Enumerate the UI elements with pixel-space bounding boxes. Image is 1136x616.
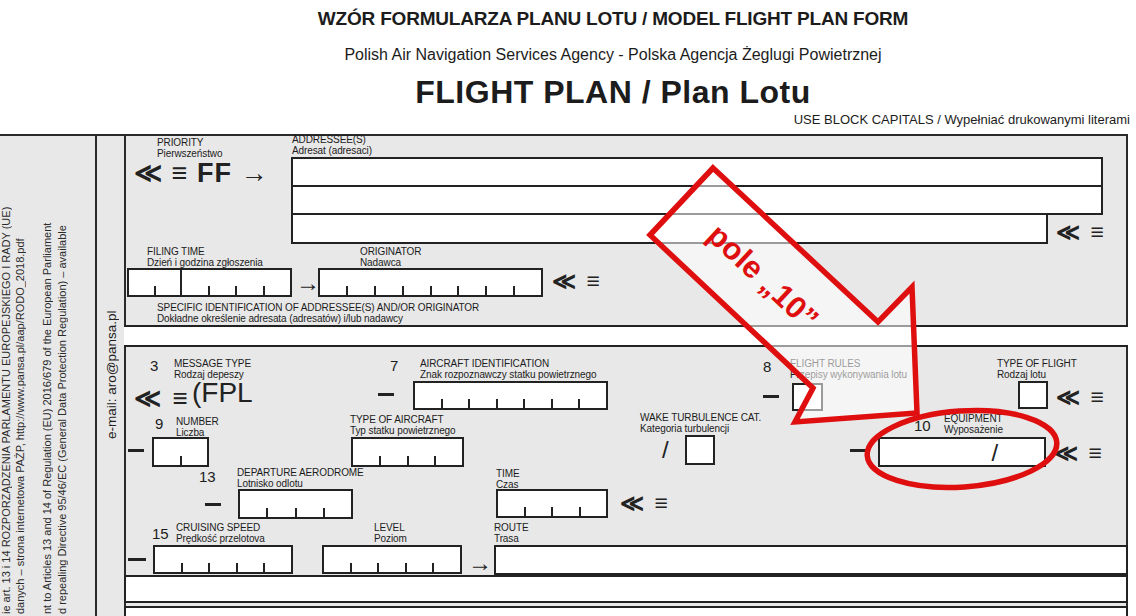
field-15-number: 15 bbox=[152, 525, 169, 542]
field-3-number: 3 bbox=[150, 357, 158, 374]
rodo-line-1: ie art. 13 i 14 ROZPORZĄDZENIA PARLAMENT… bbox=[0, 138, 14, 614]
time-telex-mark: ≪ ≡ bbox=[620, 492, 670, 515]
flight-plan-form-page: WZÓR FORMULARZA PLANU LOTU / MODEL FLIGH… bbox=[0, 0, 1136, 616]
number-box[interactable] bbox=[152, 437, 209, 467]
equipment-box[interactable]: / bbox=[878, 437, 1046, 467]
aircraft-identification-box[interactable] bbox=[413, 381, 608, 410]
specific-identification-label: SPECIFIC IDENTIFICATION OF ADDRESSEE(S) … bbox=[157, 302, 479, 324]
type-of-flight-box[interactable] bbox=[1018, 381, 1048, 409]
level-arrow-mark: → bbox=[468, 551, 492, 575]
equipment-telex-mark: ≪ ≡ bbox=[1054, 442, 1104, 465]
addressee-label: ADDRESSEE(S) Adresat (adresaci) bbox=[292, 134, 372, 156]
number-label: NUMBER Liczba bbox=[176, 416, 219, 438]
block-capitals-note: USE BLOCK CAPITALS / Wypełniać drukowany… bbox=[600, 112, 1130, 127]
filing-arrow-mark: → bbox=[296, 271, 320, 295]
time-label: TIME Czas bbox=[496, 468, 520, 490]
form-title: FLIGHT PLAN / Plan Lotu bbox=[90, 74, 1136, 111]
wake-turbulence-box[interactable] bbox=[685, 435, 715, 465]
wake-turbulence-slash-mark: / bbox=[662, 438, 669, 462]
type-of-aircraft-box[interactable] bbox=[351, 437, 464, 467]
dash-mark bbox=[763, 395, 779, 398]
dash-mark bbox=[128, 558, 146, 561]
dash-mark bbox=[850, 449, 866, 452]
type-of-flight-label: TYPE OF FLIGHT Rodzaj lotu bbox=[997, 358, 1077, 380]
departure-aerodrome-box[interactable] bbox=[238, 489, 353, 519]
dash-mark bbox=[128, 449, 144, 452]
message-type-telex-mark: ≪ ≡ bbox=[134, 385, 190, 411]
originator-box[interactable] bbox=[318, 268, 543, 297]
addressee-line-1-box[interactable] bbox=[291, 157, 1103, 187]
filing-time-label: FILING TIME Dzień i godzina zgłoszenia bbox=[147, 246, 263, 268]
addressee-line-2-box[interactable] bbox=[291, 185, 1103, 215]
aro-email: e-mail: aro@pansa.pl bbox=[99, 134, 123, 616]
fpl-prefix: (FPL bbox=[192, 379, 253, 407]
flight-rules-box[interactable] bbox=[792, 383, 823, 411]
level-box[interactable] bbox=[322, 545, 462, 574]
rodo-line-3: nt to Articles 13 and 14 of Regulation (… bbox=[41, 138, 55, 614]
time-box[interactable] bbox=[496, 489, 608, 518]
equipment-label: EQUIPMENT Wyposażenie bbox=[944, 413, 1003, 435]
flight-rules-label: FLIGHT RULES Przepisy wykonywania lotu bbox=[790, 358, 907, 380]
field-10-number: 10 bbox=[914, 417, 931, 434]
equipment-slash-mark: / bbox=[992, 441, 999, 465]
dash-mark bbox=[378, 393, 394, 396]
route-box[interactable] bbox=[494, 545, 1128, 575]
departure-aerodrome-label: DEPARTURE AERODROME Lotnisko odlotu bbox=[237, 467, 364, 489]
cruising-speed-label: CRUISING SPEED Prędkość przelotova bbox=[176, 522, 265, 544]
route-continuation-box-1[interactable] bbox=[124, 575, 1128, 603]
cruising-speed-box[interactable] bbox=[153, 545, 293, 574]
type-of-flight-telex-mark: ≪ ≡ bbox=[1056, 386, 1106, 409]
rodo-line-4: d repealing Directive 95/46/EC (General … bbox=[56, 138, 70, 614]
page-title: WZÓR FORMULARZA PLANU LOTU / MODEL FLIGH… bbox=[90, 8, 1136, 30]
rodo-line-2: danych – strona internetowa PAŻP, http:/… bbox=[14, 138, 28, 614]
route-label: ROUTE Trasa bbox=[494, 522, 529, 544]
priority-label: PRIORITY Pierwszeństwo bbox=[157, 137, 222, 159]
type-of-aircraft-label: TYPE OF AIRCRAFT Typ statku powietrznego bbox=[350, 414, 456, 436]
level-label: LEVEL Poziom bbox=[374, 522, 407, 544]
specific-identification-box[interactable] bbox=[124, 325, 1128, 347]
filing-hour-box[interactable] bbox=[180, 268, 292, 297]
addressee-telex-mark: ≪ ≡ bbox=[1056, 221, 1106, 244]
field-13-number: 13 bbox=[199, 468, 216, 485]
aircraft-identification-label: AIRCRAFT IDENTIFICATION Znak rozpoznawcz… bbox=[420, 358, 596, 380]
originator-telex-mark: ≪ ≡ bbox=[552, 270, 602, 293]
filing-day-box[interactable] bbox=[127, 268, 182, 297]
agency-subtitle: Polish Air Navigation Services Agency - … bbox=[90, 46, 1136, 64]
field-8-number: 8 bbox=[763, 358, 771, 375]
wake-turbulence-label: WAKE TURBULENCE CAT. Kategoria turbulenc… bbox=[640, 412, 761, 434]
addressee-line-3-box[interactable] bbox=[291, 213, 1048, 244]
dash-mark bbox=[205, 503, 221, 506]
field-7-number: 7 bbox=[390, 357, 398, 374]
originator-label: ORIGINATOR Nadawca bbox=[360, 246, 421, 268]
field-9-number: 9 bbox=[155, 415, 163, 432]
priority-ff-mark: ≪ ≡ FF → bbox=[134, 160, 269, 187]
route-continuation-box-2[interactable] bbox=[124, 606, 1128, 616]
